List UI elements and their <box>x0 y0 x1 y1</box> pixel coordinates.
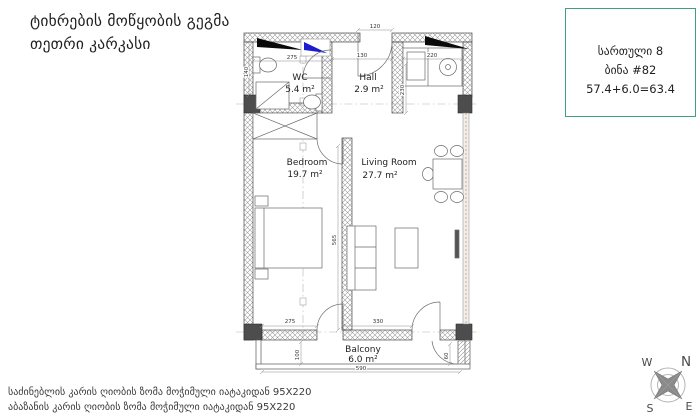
room-label-living: Living Room <box>361 158 416 168</box>
dim-partition: 565 <box>332 234 338 245</box>
room-area-balcony: 6.0 m² <box>348 355 378 365</box>
compass-e-label: E <box>686 400 693 413</box>
entrance-jambs <box>358 33 392 42</box>
balcony-hatched-corner <box>458 341 470 364</box>
dim-hall-width: 130 <box>357 53 368 59</box>
column-bottom-left <box>244 324 262 340</box>
kitchen-sink-drain <box>446 65 451 70</box>
living-balcony-door <box>412 302 440 330</box>
duct-shaft <box>253 113 317 139</box>
compass-s-label: S <box>647 402 654 415</box>
room-area-bedroom: 19.7 m² <box>287 170 323 180</box>
column-bottom-right <box>456 324 472 340</box>
tv <box>455 230 459 258</box>
dim-balcony-door: 60 <box>444 352 450 359</box>
dim-bedroom-window: 275 <box>285 319 296 325</box>
wall-bedroom-window <box>262 330 317 340</box>
room-label-hall: Hall <box>359 73 376 83</box>
footer-note-line2: აბაზანის კარის ღიობის ზომა მოჭიმული იატა… <box>8 400 312 415</box>
dim-left-top: 140 <box>244 66 250 77</box>
room-area-wc: 5.4 m² <box>285 85 315 95</box>
toilet-tank <box>253 57 260 73</box>
wall-bottom-stub <box>440 330 456 340</box>
compass-icon: N W S E <box>642 354 693 415</box>
nightstand-top <box>255 196 268 206</box>
column-right <box>458 95 472 113</box>
compass-w-label: W <box>642 356 653 369</box>
dim-balcony-width: 590 <box>356 366 367 372</box>
dim-entrance: 120 <box>370 24 381 30</box>
footer-note-line1: საძინებლის კარის ღიობის ზომა მოჭიმული ია… <box>8 385 312 400</box>
dim-balcony-depth: 100 <box>295 349 301 360</box>
dim-living-window: 330 <box>373 319 384 325</box>
compass-n-label: N <box>681 354 691 370</box>
room-area-hall: 2.9 m² <box>354 85 384 95</box>
wall-left <box>244 42 253 340</box>
footer-notes: საძინებლის კარის ღიობის ზომა მოჭიმული ია… <box>8 385 312 415</box>
dim-wc-width: 275 <box>287 55 298 61</box>
room-label-wc: WC <box>292 73 307 83</box>
dining-table <box>433 159 462 189</box>
nightstand-bottom <box>255 269 268 279</box>
wc-sink <box>304 95 321 109</box>
dim-kitchen-depth: 230 <box>400 84 406 95</box>
wall-right-upper <box>463 42 472 97</box>
room-label-bedroom: Bedroom <box>287 158 328 168</box>
bedroom-balcony-door <box>317 304 343 330</box>
bed <box>255 208 322 268</box>
coffee-table <box>395 228 418 268</box>
floor-plan: 120 275 130 220 140 230 565 275 330 100 … <box>0 0 700 420</box>
glazed-wall-right <box>463 113 469 324</box>
sofa <box>347 226 376 290</box>
dining-chair <box>435 192 448 203</box>
wall-living-window <box>343 330 412 340</box>
dining-chair <box>451 192 464 203</box>
dining-chair <box>451 146 464 157</box>
room-label-balcony: Balcony <box>345 345 381 355</box>
kitchen-appliance <box>407 52 425 80</box>
dim-kitchen-width: 220 <box>427 53 438 59</box>
dining-chair <box>423 168 434 181</box>
toilet-bowl <box>260 58 277 72</box>
room-area-living: 27.7 m² <box>362 171 398 181</box>
wall-kitchen <box>392 42 403 113</box>
dining-chair <box>435 146 448 157</box>
